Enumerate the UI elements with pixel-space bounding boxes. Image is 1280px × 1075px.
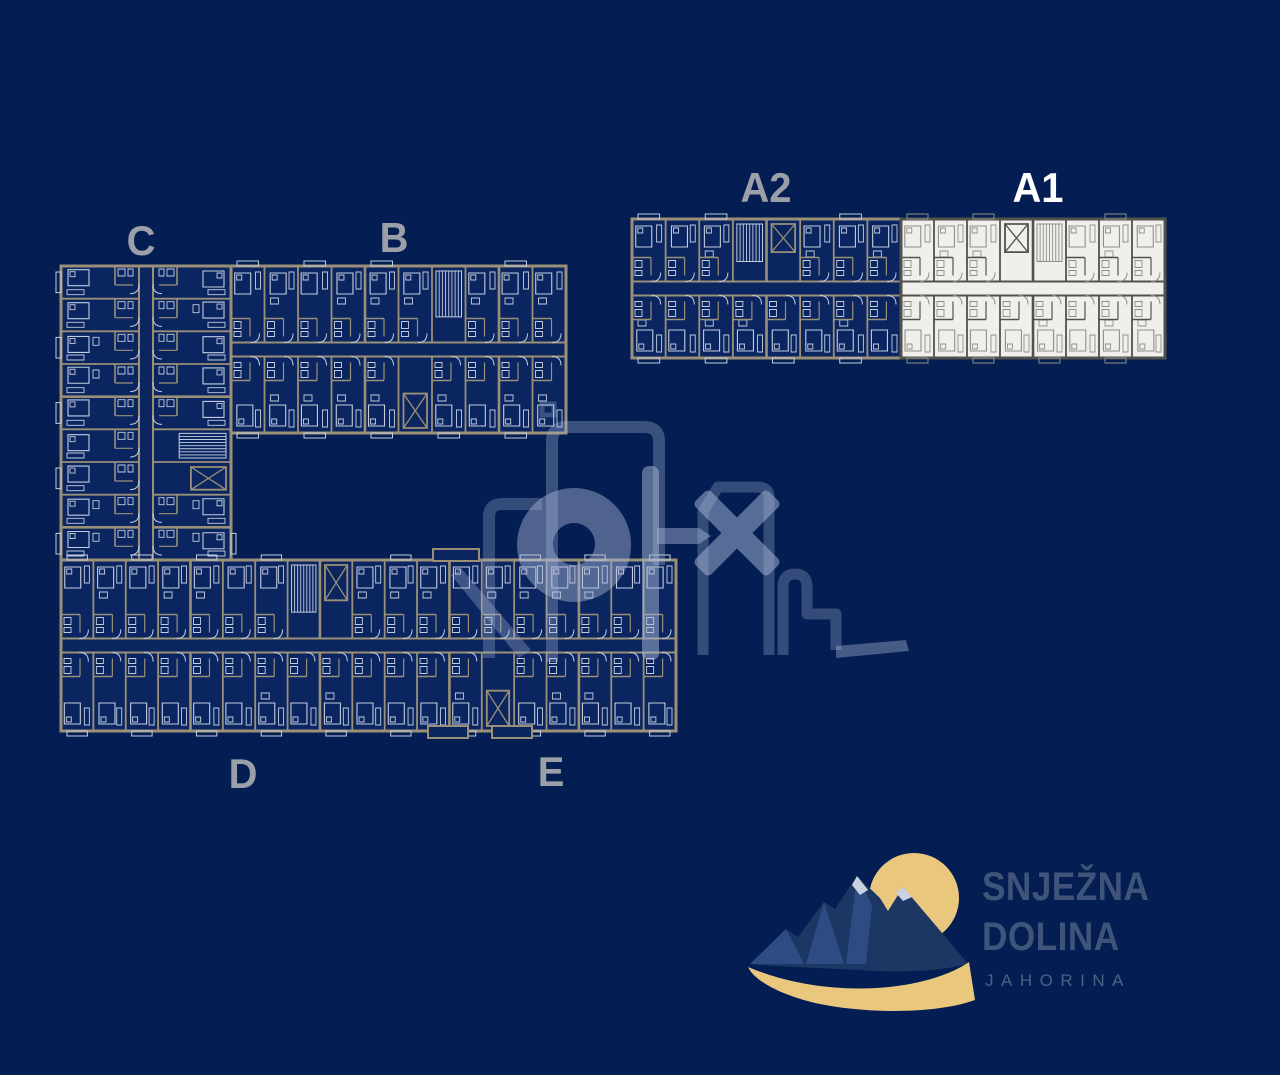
floorplan-canvas: C B A2 A1 D E SNJEŽNA DOLINA JAHORINA — [0, 0, 1280, 1075]
building-label-e: E — [538, 751, 565, 793]
building-label-b: B — [380, 217, 409, 259]
building-label-a2: A2 — [740, 167, 791, 209]
building-label-d: D — [229, 753, 258, 795]
mountain-sun-logo-icon — [740, 843, 990, 1023]
building-label-c: C — [127, 220, 156, 262]
logo-subtitle: JAHORINA — [985, 972, 1131, 989]
snjezna-dolina-logo: SNJEŽNA DOLINA JAHORINA — [740, 843, 1180, 1023]
logo-title-line1: SNJEŽNA — [982, 867, 1149, 907]
logo-title-line2: DOLINA — [982, 917, 1120, 957]
building-label-a1: A1 — [1012, 167, 1063, 209]
